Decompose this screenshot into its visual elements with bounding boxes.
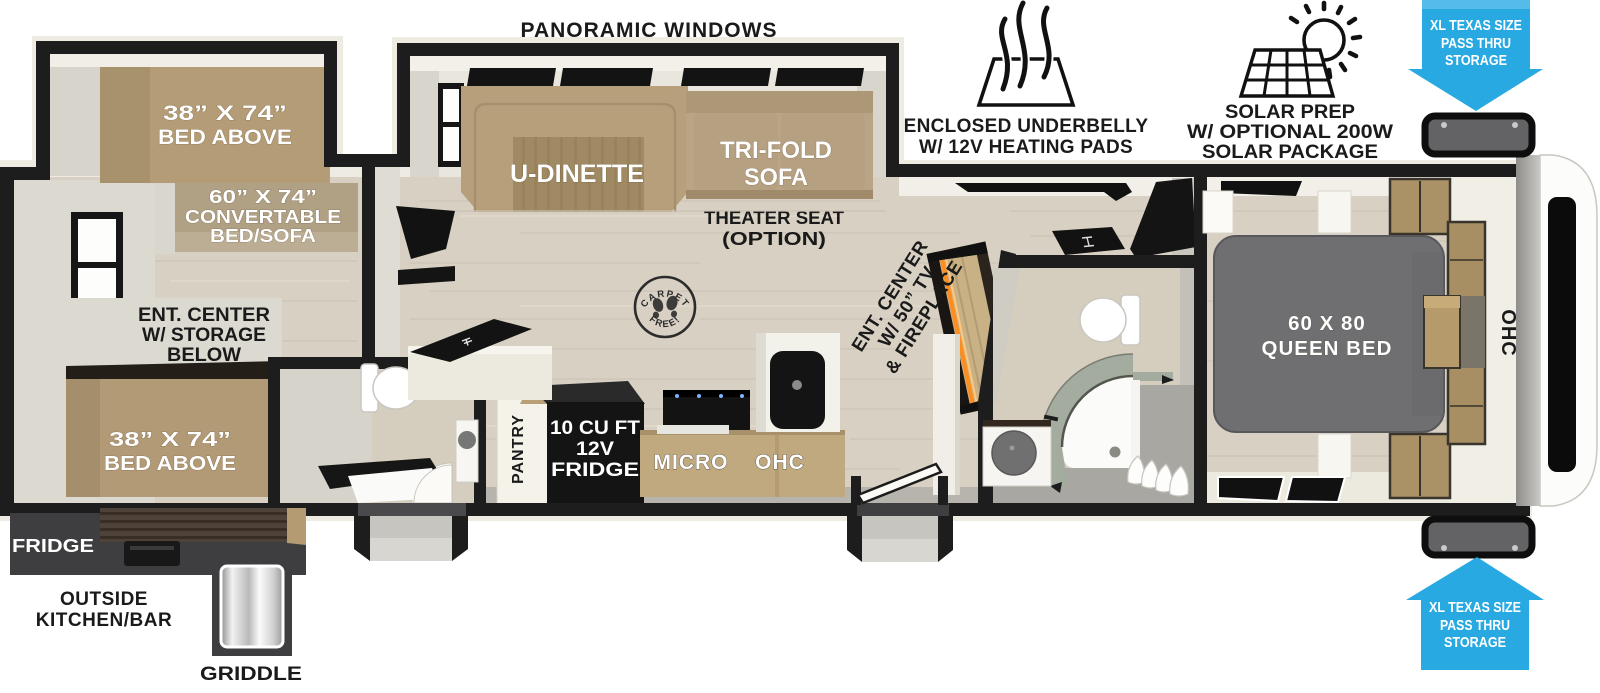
svg-text:XL TEXAS SIZE: XL TEXAS SIZE — [1429, 599, 1521, 616]
svg-text:BED ABOVE: BED ABOVE — [104, 452, 236, 475]
svg-text:PANTRY: PANTRY — [510, 414, 527, 484]
svg-text:W/ STORAGE: W/ STORAGE — [142, 325, 266, 346]
svg-text:W/ 12V HEATING PADS: W/ 12V HEATING PADS — [919, 137, 1133, 158]
svg-text:ENCLOSED UNDERBELLY: ENCLOSED UNDERBELLY — [904, 116, 1149, 137]
svg-text:FRIDGE: FRIDGE — [551, 460, 639, 481]
svg-text:SOLAR PREP: SOLAR PREP — [1225, 102, 1355, 123]
svg-text:12V: 12V — [576, 439, 614, 460]
svg-text:(OPTION): (OPTION) — [722, 228, 826, 249]
svg-text:STORAGE: STORAGE — [1445, 52, 1507, 69]
svg-text:MICRO: MICRO — [654, 451, 729, 474]
svg-text:BED/SOFA: BED/SOFA — [210, 226, 316, 246]
svg-text:38” X 74”: 38” X 74” — [163, 101, 287, 125]
svg-text:PASS THRU: PASS THRU — [1440, 617, 1510, 634]
svg-text:QUEEN BED: QUEEN BED — [1262, 337, 1393, 360]
svg-text:U-DINETTE: U-DINETTE — [510, 160, 644, 188]
svg-text:PASS THRU: PASS THRU — [1441, 35, 1511, 52]
svg-text:60 X 80: 60 X 80 — [1288, 312, 1366, 335]
svg-text:KITCHEN/BAR: KITCHEN/BAR — [36, 610, 172, 631]
svg-text:TRI-FOLD: TRI-FOLD — [720, 137, 832, 164]
svg-text:60” X 74”: 60” X 74” — [209, 187, 317, 207]
svg-text:OUTSIDE: OUTSIDE — [60, 589, 148, 610]
svg-text:SOLAR PACKAGE: SOLAR PACKAGE — [1202, 142, 1378, 163]
svg-text:FRIDGE: FRIDGE — [12, 536, 94, 556]
svg-text:STORAGE: STORAGE — [1444, 634, 1506, 651]
svg-text:BED ABOVE: BED ABOVE — [158, 125, 292, 149]
svg-text:CONVERTABLE: CONVERTABLE — [185, 207, 341, 227]
svg-text:ENT. CENTER: ENT. CENTER — [138, 305, 270, 326]
svg-text:GRIDDLE: GRIDDLE — [200, 664, 302, 685]
svg-text:OHC: OHC — [755, 451, 805, 474]
svg-text:W/ OPTIONAL 200W: W/ OPTIONAL 200W — [1187, 122, 1393, 143]
svg-text:10 CU FT: 10 CU FT — [550, 418, 640, 439]
svg-text:38” X 74”: 38” X 74” — [109, 428, 231, 451]
svg-text:OHC: OHC — [1497, 309, 1519, 356]
svg-text:PANORAMIC WINDOWS: PANORAMIC WINDOWS — [521, 19, 778, 42]
svg-text:SOFA: SOFA — [744, 164, 808, 191]
svg-text:XL TEXAS SIZE: XL TEXAS SIZE — [1430, 17, 1522, 34]
